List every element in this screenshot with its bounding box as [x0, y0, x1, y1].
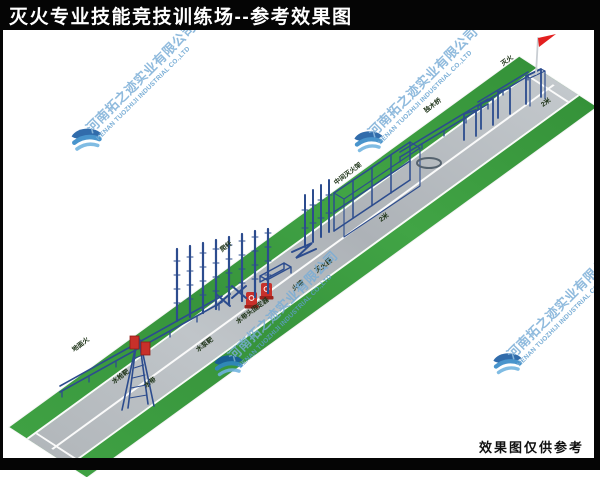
frame-border-bottom [0, 458, 600, 470]
page-title: 灭火专业技能竞技训练场--参考效果图 [9, 2, 353, 29]
scene-canvas: 地面火 水枪靶 水带 水泵靶 爬杆 水带头固定器 火墙 灭火器 中间灭火架 2米… [0, 30, 600, 458]
hose-ring [417, 158, 441, 168]
title-bar: 灭火专业技能竞技训练场--参考效果图 [0, 0, 600, 30]
disclaimer-text: 效果图仅供参考 [479, 437, 584, 456]
spiked-poles [302, 180, 332, 247]
watermark: 河南拓之迹实业有限公司 HENAN TUOZHIJI INDUSTRIAL CO… [211, 348, 245, 389]
ground-label: 灭火 [499, 53, 515, 68]
ground-label: 2米 [377, 210, 391, 224]
training-ground-illustration: 地面火 水枪靶 水带 水泵靶 爬杆 水带头固定器 火墙 灭火器 中间灭火架 2米… [0, 30, 600, 458]
ground-label: 地面火 [70, 334, 91, 353]
frame-border-right [594, 0, 600, 470]
balance-beam-3 [478, 72, 528, 110]
frame-border-left [0, 0, 3, 470]
ground-label: 爬杆 [217, 238, 234, 254]
watermark: 河南拓之迹实业有限公司 HENAN TUOZHIJI INDUSTRIAL CO… [68, 121, 104, 164]
watermark: 河南拓之迹实业有限公司 HENAN TUOZHIJI INDUSTRIAL CO… [490, 346, 524, 387]
watermark: 河南拓之迹实业有限公司 HENAN TUOZHIJI INDUSTRIAL CO… [351, 124, 385, 165]
fire-wall-frame [260, 263, 291, 282]
finish-flag [536, 34, 556, 74]
